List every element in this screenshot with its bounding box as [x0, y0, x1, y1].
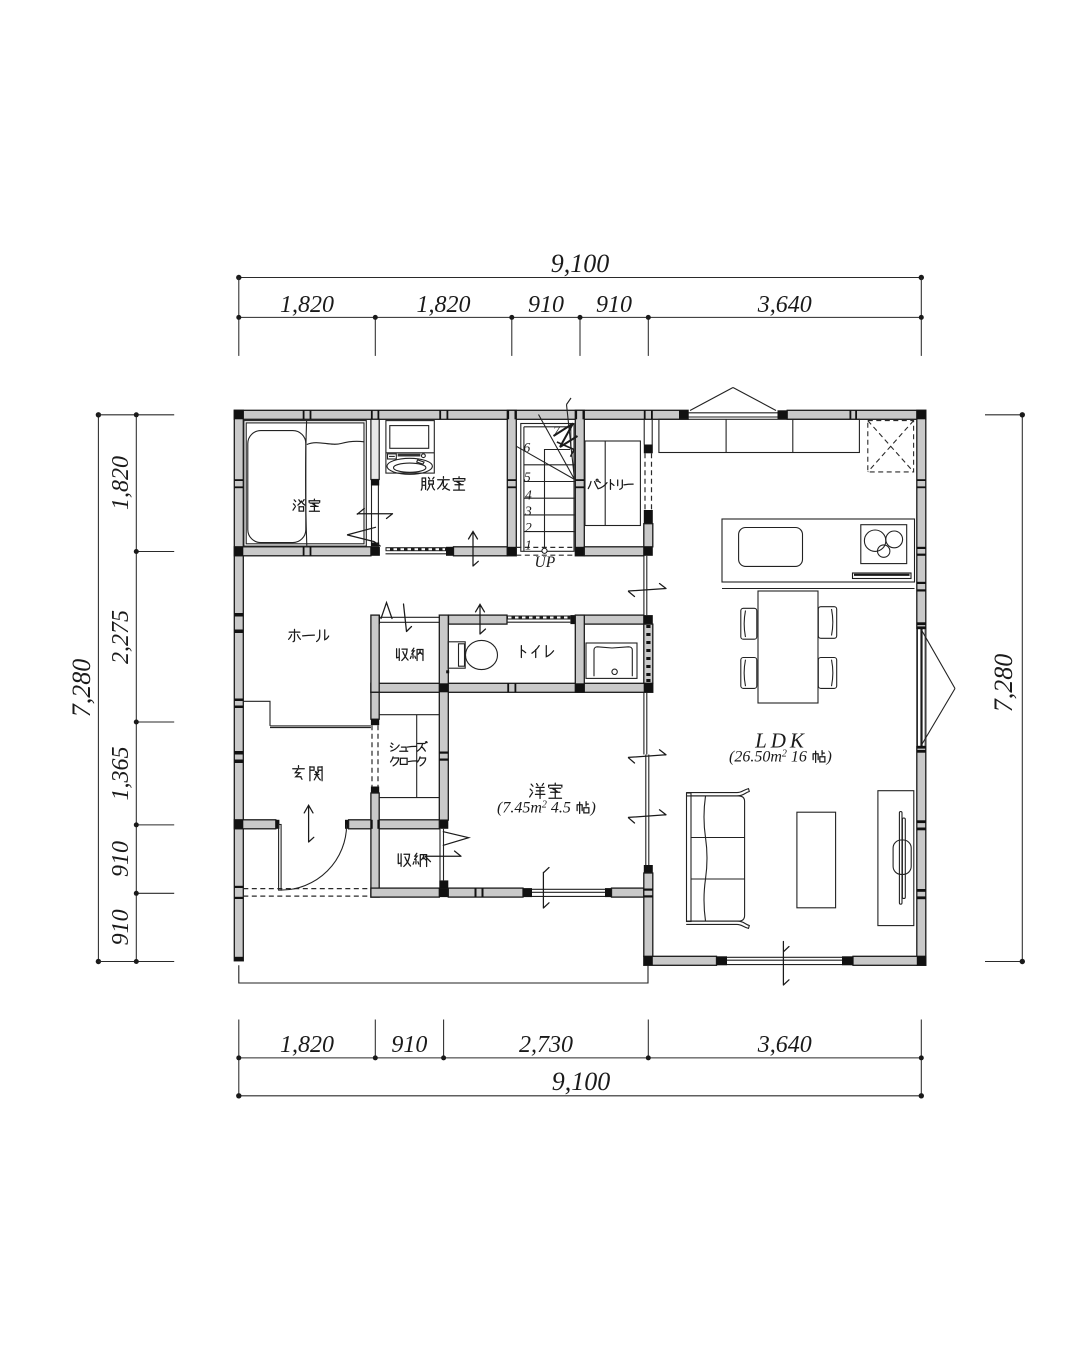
svg-text:2: 2 — [525, 520, 532, 535]
svg-text:): ) — [590, 800, 596, 817]
svg-text:1,820: 1,820 — [280, 1032, 334, 1058]
svg-text:): ) — [826, 749, 832, 766]
svg-text:1,820: 1,820 — [280, 292, 334, 318]
svg-text:2,275: 2,275 — [108, 610, 134, 664]
svg-text:7,280: 7,280 — [989, 654, 1018, 713]
svg-text:9,100: 9,100 — [551, 249, 610, 278]
svg-text:1,365: 1,365 — [108, 747, 134, 801]
svg-text:3,640: 3,640 — [757, 1032, 812, 1058]
svg-text:1,820: 1,820 — [417, 292, 471, 318]
svg-text:910: 910 — [108, 841, 134, 877]
svg-text:1: 1 — [525, 538, 532, 553]
svg-text:3,640: 3,640 — [757, 292, 812, 318]
svg-text:3: 3 — [524, 504, 532, 519]
svg-text:UP: UP — [535, 554, 556, 571]
svg-text:2,730: 2,730 — [519, 1032, 573, 1058]
svg-text:910: 910 — [528, 292, 564, 318]
svg-text:4: 4 — [525, 488, 532, 503]
svg-text:910: 910 — [108, 909, 134, 945]
svg-text:(26.50m2 16: (26.50m2 16 — [729, 749, 807, 766]
svg-text:5: 5 — [524, 470, 531, 485]
svg-text:9,100: 9,100 — [552, 1067, 611, 1096]
svg-text:(7.45m2 4.5: (7.45m2 4.5 — [497, 800, 571, 817]
svg-text:1,820: 1,820 — [108, 456, 134, 510]
svg-text:910: 910 — [391, 1032, 427, 1058]
svg-text:910: 910 — [596, 292, 632, 318]
svg-text:7,280: 7,280 — [67, 659, 96, 718]
